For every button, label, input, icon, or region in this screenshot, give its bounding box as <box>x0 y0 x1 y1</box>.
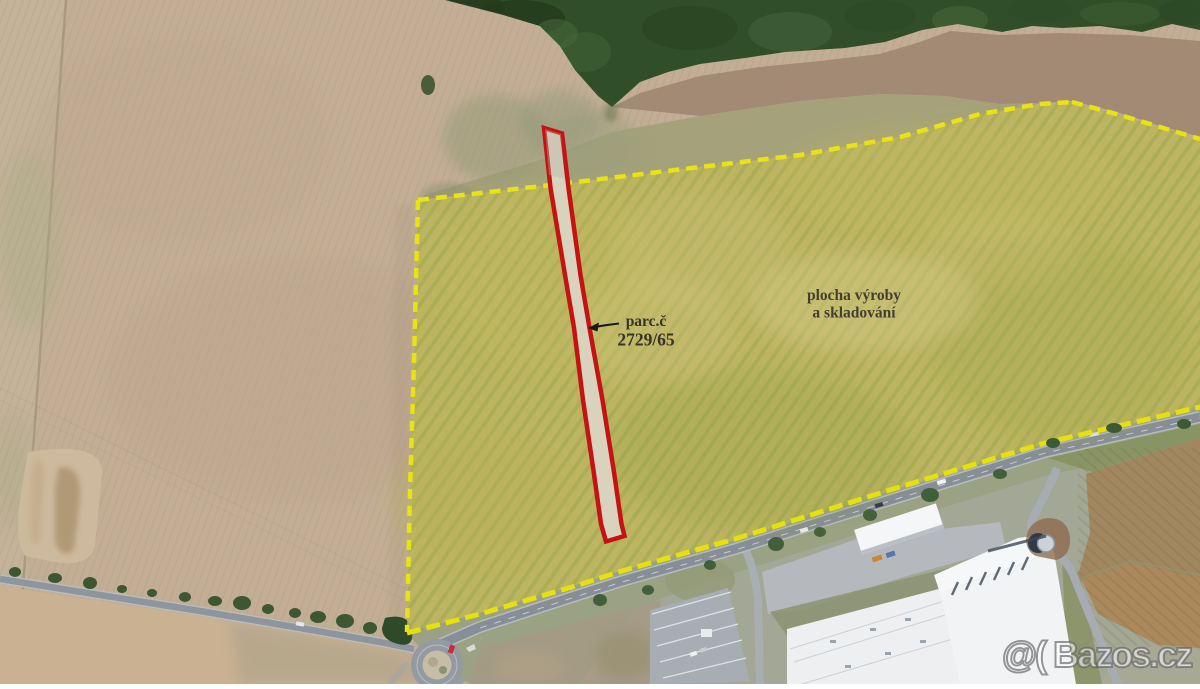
svg-text:2729/65: 2729/65 <box>617 330 675 350</box>
svg-text:plocha výroby: plocha výroby <box>807 287 901 304</box>
svg-text:@( Bazos.cz: @( Bazos.cz <box>1002 634 1192 675</box>
svg-text:a skladování: a skladování <box>812 305 896 322</box>
svg-text:parc.č: parc.č <box>626 313 667 330</box>
